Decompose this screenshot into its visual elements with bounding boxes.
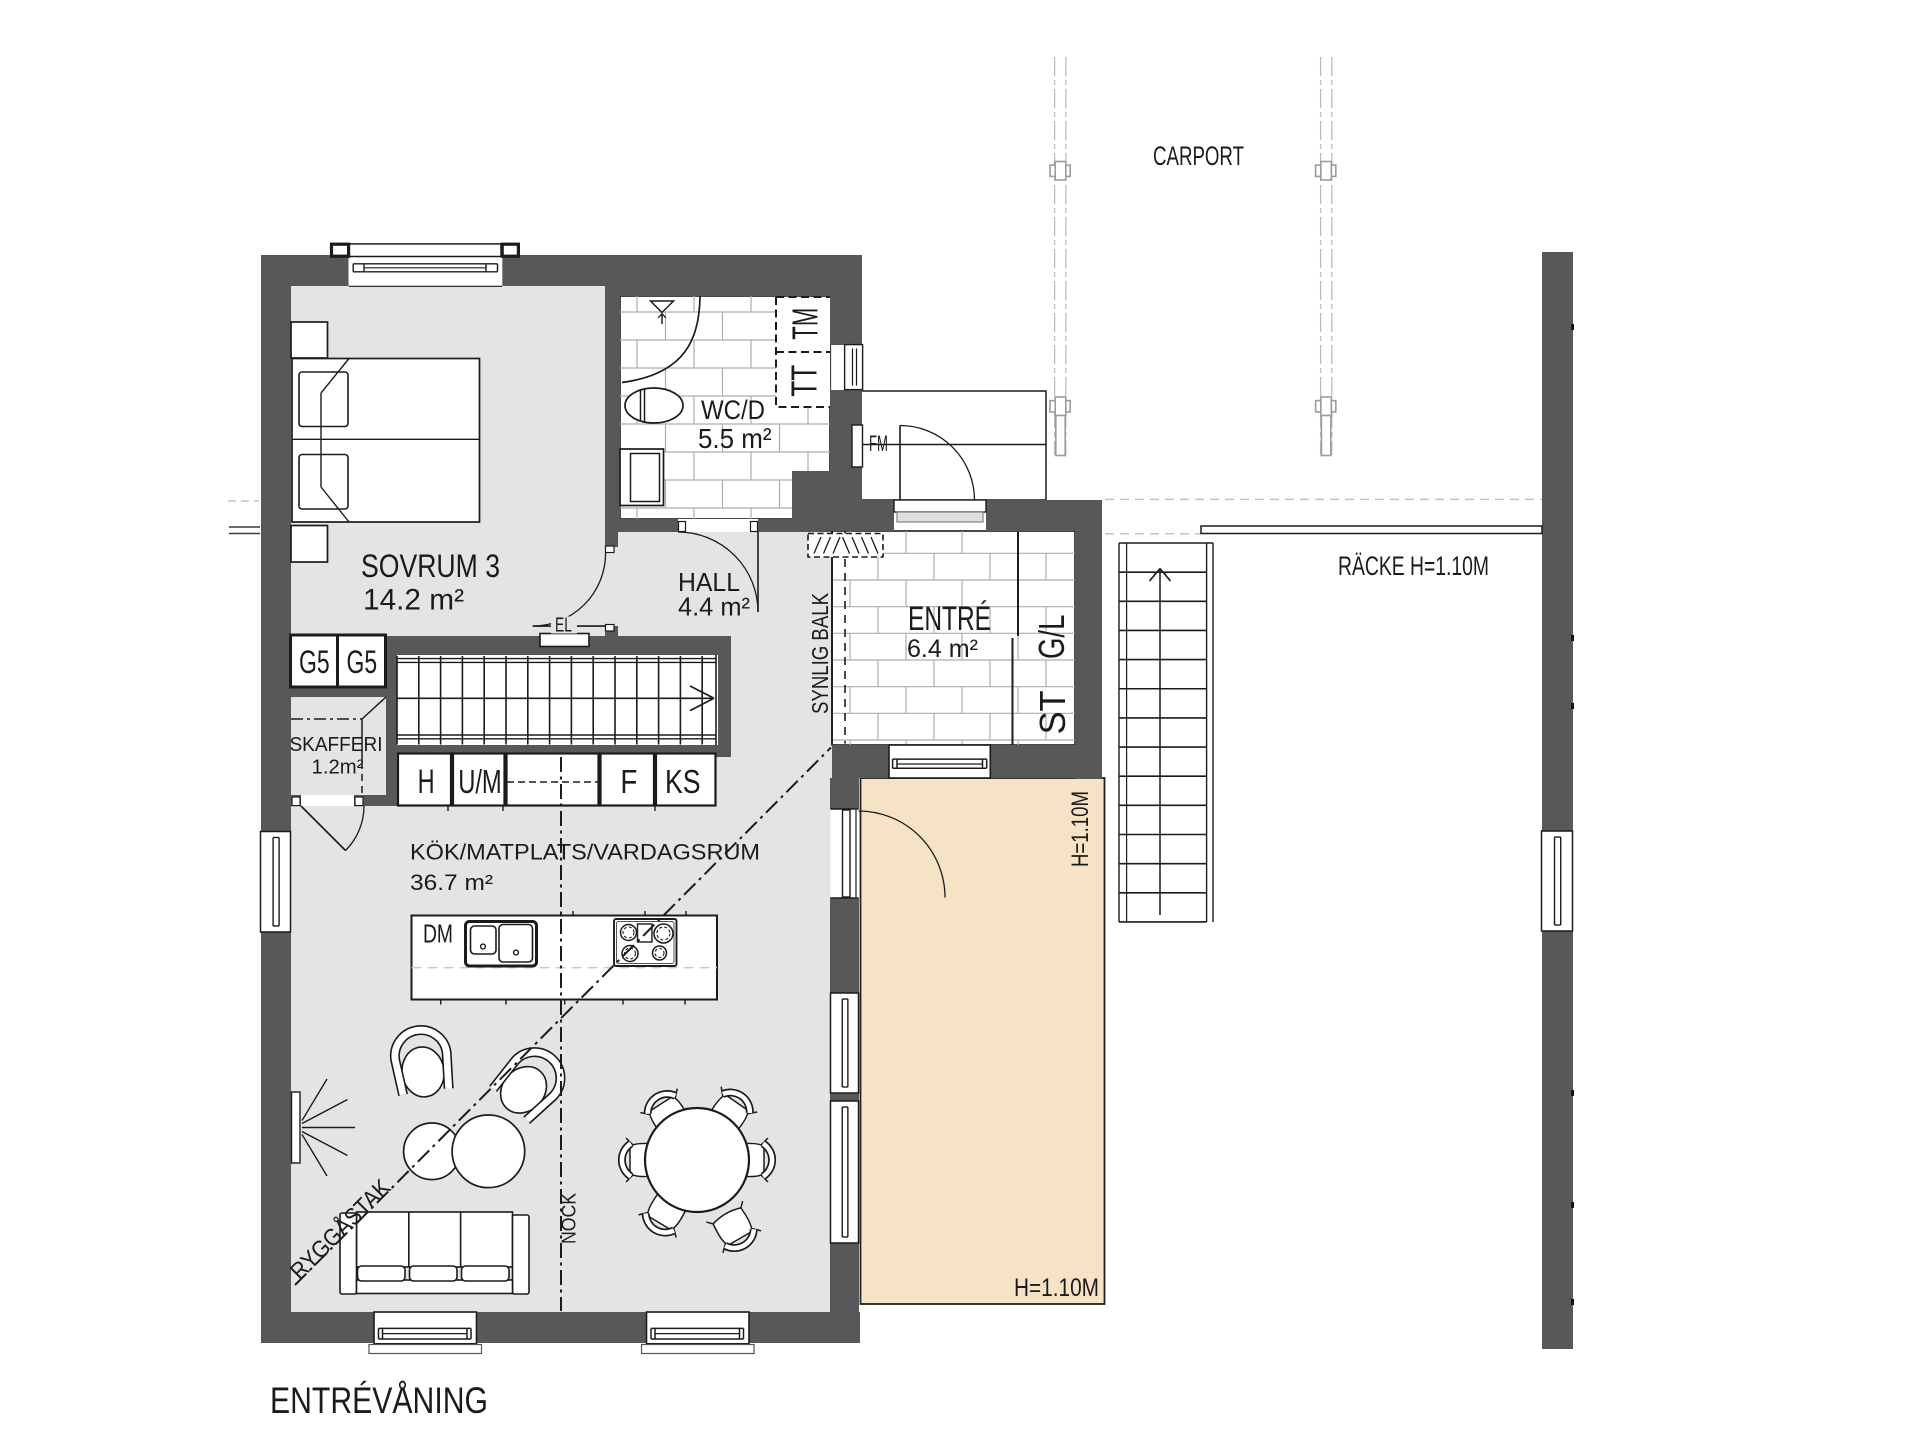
svg-text:TM: TM — [785, 308, 826, 340]
svg-text:F: F — [620, 763, 637, 800]
svg-text:G/L: G/L — [1031, 615, 1072, 659]
svg-text:CARPORT: CARPORT — [1153, 141, 1244, 171]
svg-text:SYNLIG BALK: SYNLIG BALK — [807, 593, 833, 714]
svg-text:H=1.10M: H=1.10M — [1067, 791, 1094, 867]
svg-text:1.2m²: 1.2m² — [312, 757, 364, 779]
svg-text:FM: FM — [869, 431, 888, 456]
svg-text:TT: TT — [784, 365, 825, 397]
svg-text:G5: G5 — [347, 644, 378, 680]
svg-text:SOVRUM 3: SOVRUM 3 — [361, 548, 500, 584]
svg-text:H=1.10M: H=1.10M — [1014, 1274, 1099, 1302]
svg-text:DM: DM — [423, 919, 453, 949]
svg-text:ST: ST — [1032, 690, 1073, 734]
svg-text:ENTRÉ: ENTRÉ — [908, 600, 991, 638]
svg-text:4.4 m²: 4.4 m² — [678, 592, 750, 622]
svg-text:G5: G5 — [299, 644, 330, 680]
svg-text:5.5 m²: 5.5 m² — [698, 423, 772, 454]
svg-text:U/M: U/M — [458, 763, 502, 800]
svg-text:6.4 m²: 6.4 m² — [907, 635, 978, 663]
svg-text:EL: EL — [555, 615, 572, 637]
svg-text:H: H — [418, 763, 435, 801]
svg-text:14.2 m²: 14.2 m² — [363, 584, 464, 617]
svg-text:ENTRÉVÅNING: ENTRÉVÅNING — [270, 1379, 488, 1421]
svg-text:WC/D: WC/D — [701, 395, 765, 425]
svg-text:36.7 m²: 36.7 m² — [410, 870, 493, 895]
svg-text:KS: KS — [665, 763, 701, 800]
svg-text:KÖK/MATPLATS/VARDAGSRUM: KÖK/MATPLATS/VARDAGSRUM — [410, 840, 760, 865]
svg-text:SKAFFERI: SKAFFERI — [290, 734, 383, 756]
svg-text:RÄCKE H=1.10M: RÄCKE H=1.10M — [1338, 551, 1489, 581]
svg-text:NOCK: NOCK — [559, 1193, 581, 1244]
